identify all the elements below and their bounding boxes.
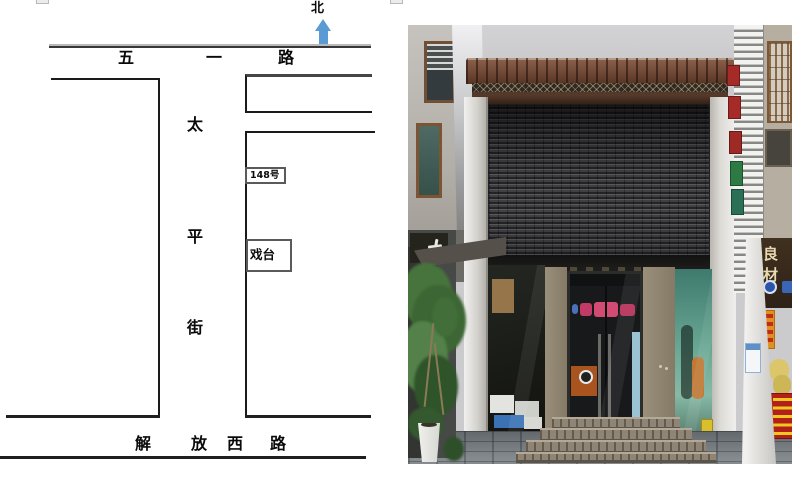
jiefang-road-char-1: 解 [135,436,151,452]
west-block-bottom-line [6,415,160,418]
red-edge-sign [727,65,740,86]
building-148-box: 148号 [245,167,286,184]
jiefang-road-char-3: 西 [227,436,243,452]
window-blinds [427,44,453,70]
panel-mark [665,367,668,370]
right-building-lattice-window [767,41,792,123]
jiefang-road-char-4: 路 [270,436,286,452]
red-edge-sign [729,131,742,154]
display-window-left [488,265,545,449]
glass-reflection [675,269,712,449]
taiping-street-char-2: 平 [187,229,203,245]
taiping-street-char-1: 太 [187,117,203,133]
stone-step [516,452,716,463]
building-148-label: 148号 [247,171,279,181]
white-pillar-left [464,97,488,463]
stage-box: 戏台 [246,239,292,272]
yellow-menu-text-rows [773,398,792,436]
panel-mark [659,365,662,368]
shop-logo-circle [763,280,777,294]
wuyi-road-char-1: 五 [118,50,134,66]
notice-header [746,344,760,350]
location-map: 北 五 一 路 太 平 街 148号 戏台 解 放 西 路 [0,0,404,479]
red-edge-sign [728,96,741,119]
page: 北 五 一 路 太 平 街 148号 戏台 解 放 西 路 [0,0,804,479]
taped-notice [745,343,761,373]
display-window-right [675,269,712,449]
shop-logo-character [782,281,792,293]
selection-handle-right [390,0,403,4]
green-edge-sign [731,189,744,215]
roof-beam [472,92,728,104]
jiefang-road-char-2: 放 [191,436,207,452]
chinese-roof-tiles [466,58,734,84]
northeast-block-outline [245,74,372,113]
east-block-bottom-line [245,415,371,418]
wuyi-road-char-3: 路 [278,50,294,66]
left-building-window-lower [416,123,442,198]
lattice-shutter [486,104,712,259]
stage-label: 戏台 [248,249,275,262]
glass-reflection [488,265,545,449]
right-building-window-lower [765,129,792,167]
plant-foliage [432,297,458,337]
selection-handle-left [36,0,49,4]
small-bush [444,437,464,461]
wuyi-road-char-2: 一 [206,50,222,66]
green-edge-sign [730,161,743,186]
taiping-street-char-3: 街 [187,320,203,336]
jiefang-road-line [0,456,366,459]
storefront-photo: 良材 [408,25,792,464]
left-building-window-upper [424,41,456,103]
yellow-bag [773,375,791,395]
west-block-outline [51,78,160,417]
north-label: 北 [311,2,324,15]
